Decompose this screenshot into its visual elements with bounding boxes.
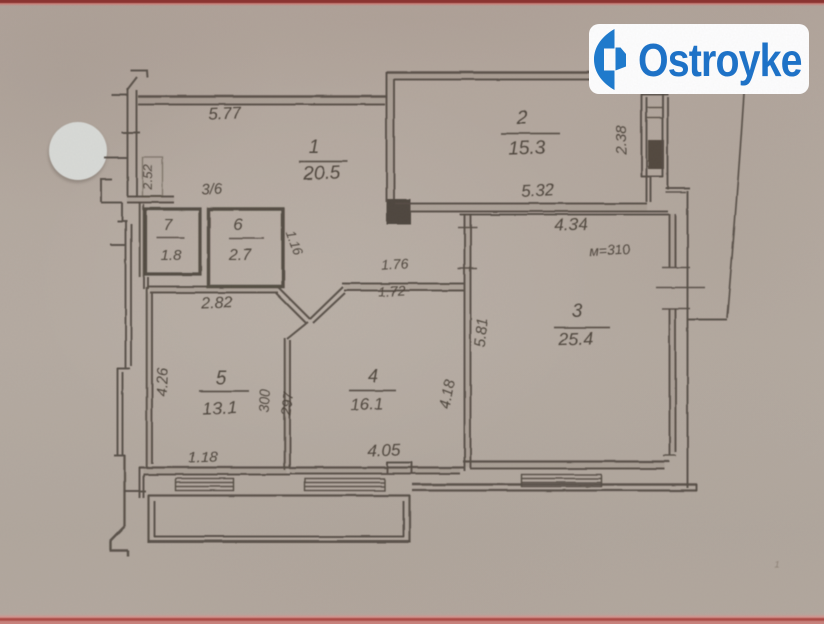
svg-text:2.82: 2.82	[200, 294, 233, 312]
svg-text:5.77: 5.77	[208, 103, 242, 123]
svg-text:1.76: 1.76	[381, 255, 409, 272]
svg-text:297: 297	[278, 390, 296, 417]
svg-text:1.16: 1.16	[283, 228, 306, 258]
svg-text:16.1: 16.1	[350, 394, 384, 414]
svg-text:1: 1	[309, 137, 320, 158]
svg-text:м=310: м=310	[589, 241, 631, 259]
svg-text:5: 5	[216, 368, 227, 389]
svg-text:4.05: 4.05	[367, 440, 401, 460]
svg-text:3/6: 3/6	[201, 180, 223, 198]
svg-text:300: 300	[256, 389, 273, 413]
svg-text:1.72: 1.72	[378, 283, 406, 300]
svg-text:20.5: 20.5	[302, 162, 341, 184]
svg-text:2.38: 2.38	[613, 125, 630, 156]
svg-text:7: 7	[164, 217, 174, 234]
svg-text:1.18: 1.18	[188, 448, 218, 466]
svg-text:4: 4	[368, 366, 378, 386]
svg-text:2.7: 2.7	[228, 247, 252, 264]
svg-text:4.34: 4.34	[554, 214, 588, 234]
svg-text:15.3: 15.3	[508, 137, 546, 159]
svg-text:3: 3	[572, 301, 583, 322]
svg-text:4.18: 4.18	[437, 378, 459, 410]
svg-text:13.1: 13.1	[202, 397, 238, 418]
svg-text:1.8: 1.8	[161, 247, 183, 264]
svg-text:5.81: 5.81	[472, 317, 491, 348]
svg-text:25.4: 25.4	[557, 328, 594, 349]
svg-text:4.26: 4.26	[153, 366, 171, 396]
svg-text:6: 6	[233, 215, 243, 234]
svg-text:2.52: 2.52	[140, 163, 155, 190]
svg-text:5.32: 5.32	[521, 180, 556, 201]
svg-text:1: 1	[774, 560, 779, 570]
svg-text:2: 2	[516, 108, 528, 129]
